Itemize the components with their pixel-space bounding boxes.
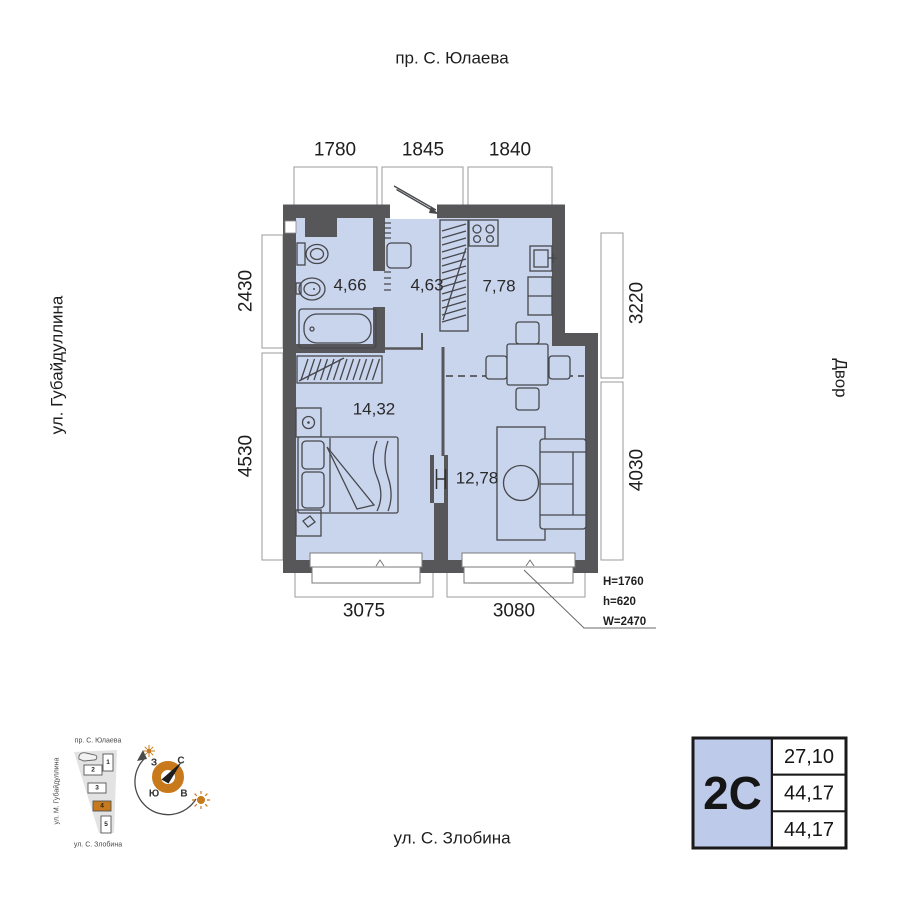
area-value-1: 27,10 <box>784 746 834 768</box>
apartment-type: 2С <box>703 767 762 819</box>
block-5-label: 5 <box>104 821 108 828</box>
living-area: 12,78 <box>456 469 499 488</box>
mini-street-top: пр. С. Юлаева <box>75 738 122 745</box>
block-3-label: 3 <box>95 785 99 792</box>
mini-street-left: ул. М. Губайдуллина <box>53 757 61 824</box>
compass-east: В <box>180 789 187 800</box>
dim-top-1: 1780 <box>314 140 356 161</box>
dim-top-3: 1840 <box>489 140 531 161</box>
hallway-area: 4,63 <box>410 276 443 295</box>
wardrobe <box>297 356 382 383</box>
floor-plan-page: H=1760 h=620 W=2470 4,66 4,63 7,78 14,32… <box>0 0 900 900</box>
dim-bottom-1: 3075 <box>343 601 385 622</box>
floor-plan-drawing: H=1760 h=620 W=2470 4,66 4,63 7,78 14,32… <box>0 0 900 900</box>
dim-top-2: 1845 <box>402 140 444 161</box>
duct-shaft <box>305 218 337 237</box>
chair <box>516 322 539 344</box>
compass: З С Ю В <box>135 745 210 815</box>
street-bottom: ул. С. Злобина <box>393 829 511 848</box>
sun-icon-small <box>143 745 155 757</box>
chair <box>486 356 507 379</box>
sun-icon-large <box>192 791 210 809</box>
dim-left-2: 4530 <box>236 435 257 477</box>
sofa <box>540 439 586 529</box>
street-left: ул. Губайдуллина <box>48 295 67 434</box>
arc-arrowhead <box>137 750 147 761</box>
bathroom-area: 4,66 <box>333 276 366 295</box>
mini-site-plan: пр. С. Юлаева ул. М. Губайдуллина ул. С.… <box>53 738 123 849</box>
bed <box>298 437 398 513</box>
compass-west: З <box>151 758 157 769</box>
compass-south: Ю <box>149 789 159 800</box>
label-yard: Двор <box>832 358 851 397</box>
living-window <box>462 553 575 583</box>
street-top: пр. С. Юлаева <box>395 49 509 68</box>
chair <box>549 356 570 379</box>
block-4-label: 4 <box>100 803 104 810</box>
window-spec-h: h=620 <box>603 596 636 608</box>
area-value-2: 44,17 <box>784 783 834 805</box>
mini-street-bottom: ул. С. Злобина <box>74 841 122 849</box>
block-2-label: 2 <box>91 767 95 774</box>
bedroom-area: 14,32 <box>353 400 396 419</box>
dim-right-2: 4030 <box>627 449 648 491</box>
bedroom-window <box>310 553 422 583</box>
dining-table <box>507 344 548 385</box>
window-spec-H: H=1760 <box>603 576 644 588</box>
chair <box>516 388 539 410</box>
hall-closet <box>440 220 468 331</box>
window-spec-W: W=2470 <box>603 616 646 628</box>
apartment-info-table: 2С 27,10 44,17 44,17 <box>693 738 846 848</box>
block-1-label: 1 <box>106 759 110 766</box>
kitchen-area: 7,78 <box>482 277 515 296</box>
area-value-3: 44,17 <box>784 819 834 841</box>
dim-left-1: 2430 <box>236 270 257 312</box>
compass-north: С <box>177 756 184 767</box>
dim-bottom-2: 3080 <box>493 601 535 622</box>
wall-niche <box>285 221 296 233</box>
dim-right-1: 3220 <box>627 282 648 324</box>
